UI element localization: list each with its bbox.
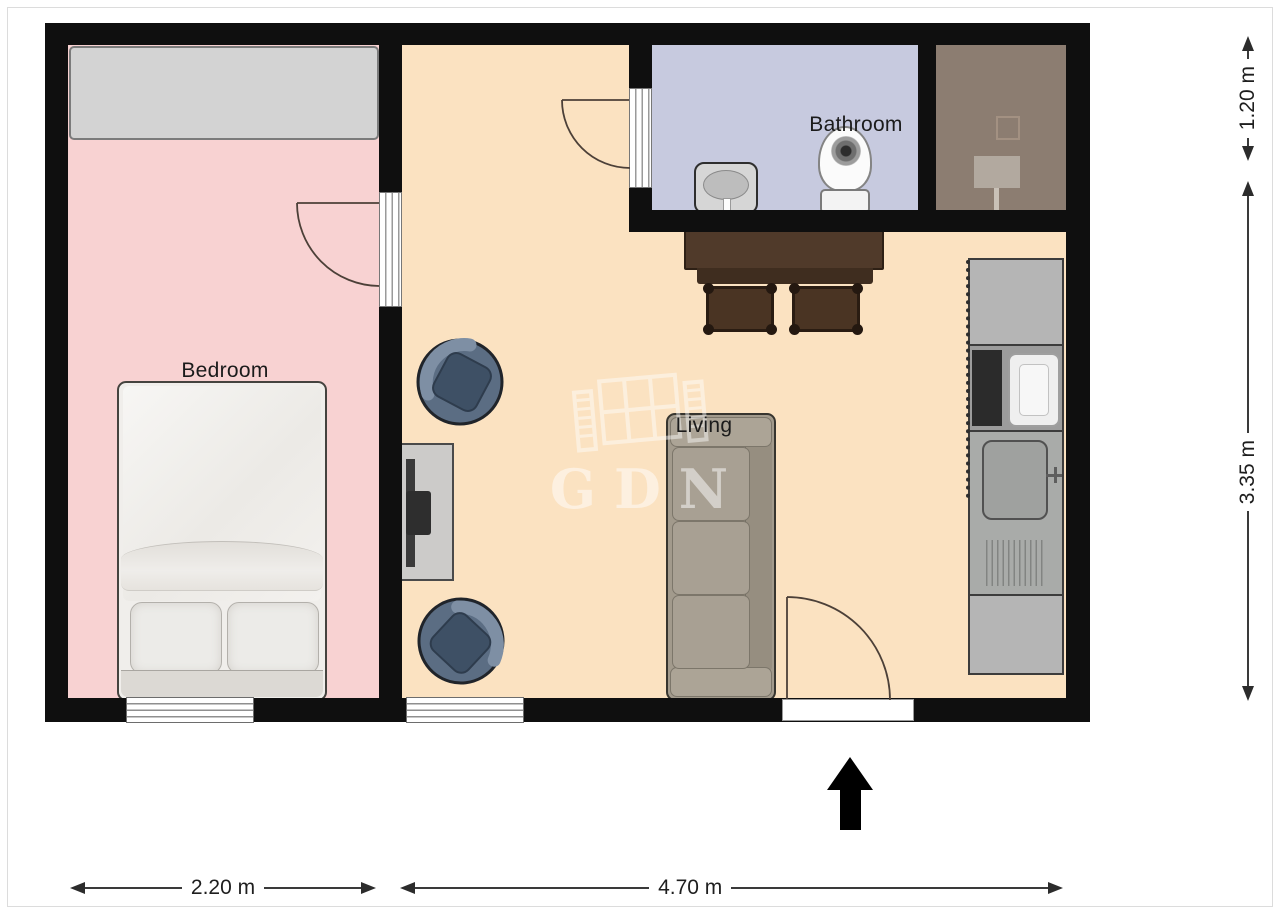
north-arrow-stem: [840, 789, 861, 830]
dimension-line: [1247, 138, 1249, 146]
bedroom-label: Bedroom: [155, 359, 295, 383]
arrowhead-left-icon: [400, 882, 415, 894]
dimension-value: 4.70 m: [649, 876, 731, 900]
arrowhead-up-icon: [1242, 181, 1254, 196]
dimension-line: [1247, 196, 1249, 433]
arrowhead-up-icon: [1242, 36, 1254, 51]
watermark-text: GDN: [533, 462, 747, 516]
arrowhead-left-icon: [70, 882, 85, 894]
dimension-living-depth: 3.35 m: [1235, 181, 1261, 701]
dimension-line: [415, 887, 649, 889]
arrowhead-right-icon: [361, 882, 376, 894]
arrowhead-down-icon: [1242, 686, 1254, 701]
bathroom-door-swing: [562, 100, 630, 168]
dimension-value: 2.20 m: [182, 876, 264, 900]
dimension-line: [1247, 511, 1249, 686]
bedroom-door-swing: [297, 203, 379, 286]
watermark: GDN: [533, 371, 747, 516]
floor-plan-canvas: GDN Bedroom Bathroom Living 2.20 m 4.70 …: [0, 0, 1280, 914]
arrowhead-down-icon: [1242, 146, 1254, 161]
dimension-bedroom-width: 2.20 m: [70, 875, 376, 901]
dimension-living-width: 4.70 m: [400, 875, 1063, 901]
living-label: Living: [660, 414, 748, 438]
dimension-bathroom-depth: 1.20 m: [1235, 36, 1261, 161]
dimension-line: [85, 887, 182, 889]
dimension-value: 3.35 m: [1236, 433, 1260, 511]
bathroom-label: Bathroom: [790, 113, 922, 137]
entrance-door-swing: [787, 597, 890, 700]
north-arrow-icon: [827, 757, 873, 790]
dimension-line: [264, 887, 361, 889]
watermark-logo-icon: [564, 371, 716, 455]
dimension-value: 1.20 m: [1236, 59, 1260, 137]
dimension-line: [731, 887, 1048, 889]
arrowhead-right-icon: [1048, 882, 1063, 894]
